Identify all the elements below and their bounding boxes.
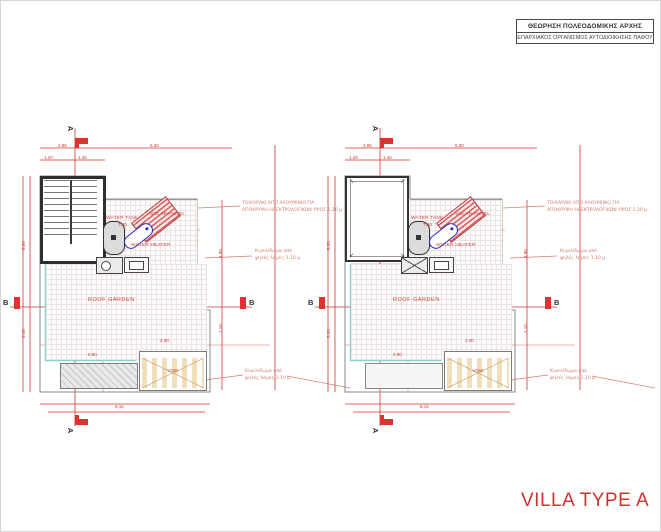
note-line: ΑΠΟΚΡΥΨΗ ΗΛΕΚΤΡΟΛΟΓΙΚΩΝ ΥΨΟΣ 1.20 μ bbox=[547, 208, 647, 213]
drawing-title: VILLA TYPE A bbox=[521, 490, 649, 512]
dimension-label: 8.15 bbox=[420, 404, 429, 409]
dimension-label: 4.90 bbox=[218, 249, 223, 258]
dimension-label: 7.00 bbox=[423, 222, 432, 227]
section-marker-b-right: B bbox=[554, 298, 559, 307]
note-line: Κιγκλίδωμα από bbox=[550, 369, 587, 374]
planter bbox=[365, 363, 443, 389]
stair-treads bbox=[72, 180, 97, 236]
dimension-label: 2.85 bbox=[58, 143, 67, 148]
stair-divider bbox=[70, 180, 72, 244]
section-marker-a-top: A bbox=[371, 126, 380, 131]
section-marker-a-bottom: A bbox=[371, 428, 380, 433]
dimension-label: 3.10 bbox=[21, 329, 26, 338]
stairwell-void: ↖ ↗ ↙ ↘ bbox=[345, 176, 409, 262]
note-line: ψηλές λάμες 1.10 μ bbox=[245, 376, 290, 381]
water-heater-label: WATER HEATER bbox=[436, 243, 476, 248]
approval-line-2: ΕΠΑΡΧΙΑΚΟΣ ΟΡΓΑΝΙΣΜΟΣ ΑΥΤΟΔΙΟΙΚΗΣΗΣ ΠΑΦΟ… bbox=[516, 33, 654, 44]
dimension-label: 2.30 bbox=[465, 338, 474, 343]
water-tank-label: WATER TANK bbox=[106, 216, 138, 221]
stair-treads bbox=[44, 180, 69, 236]
roof-garden-label: ROOF GARDEN bbox=[88, 297, 135, 303]
dimension-label: 1.10 bbox=[218, 324, 223, 333]
dimension-label: 8.15 bbox=[115, 404, 124, 409]
dimension-label: 1.20 bbox=[44, 155, 53, 160]
note-line: ψηλές λάμες 1.10 μ bbox=[255, 256, 300, 261]
sink-unit bbox=[96, 257, 123, 274]
dimension-label: 1.45 bbox=[78, 155, 87, 160]
note-railing: Κιγκλίδωμα από ψηλές λάμες 1.10 μ bbox=[255, 249, 300, 262]
note-railing: Κιγκλίδωμα από ψηλές λάμες 1.10 μ bbox=[560, 249, 605, 262]
dimension-label: 7.00 bbox=[118, 222, 127, 227]
pergola-slats bbox=[447, 358, 509, 388]
corner-arrow-icon: ↙ bbox=[349, 253, 354, 259]
dimension-label: 3.10 bbox=[326, 329, 331, 338]
note-railing-bottom: Κιγκλίδωμα από ψηλές λάμες 1.10 μ bbox=[550, 369, 595, 382]
approval-stamp: ΘΕΩΡΗΣΗ ΠΟΛΕΟΔΟΜΙΚΗΣ ΑΡΧΗΣ ΕΠΑΡΧΙΑΚΟΣ ΟΡ… bbox=[516, 19, 654, 44]
void-label: VOID bbox=[140, 368, 206, 373]
water-tank-label: WATER TANK bbox=[411, 216, 443, 221]
roof-grid-lower bbox=[46, 264, 207, 360]
worktop-unit bbox=[429, 257, 454, 273]
note-line: Κιγκλίδωμα από bbox=[245, 369, 282, 374]
note-line: ψηλές λάμες 1.10 μ bbox=[550, 376, 595, 381]
approval-line-1: ΘΕΩΡΗΣΗ ΠΟΛΕΟΔΟΜΙΚΗΣ ΑΡΧΗΣ bbox=[516, 19, 654, 33]
dimension-label: 8.20 bbox=[326, 241, 331, 250]
note-line: Κιγκλίδωμα από bbox=[255, 249, 292, 254]
dimension-label: 0.90 bbox=[393, 352, 402, 357]
dimension-label: 0.90 bbox=[88, 352, 97, 357]
note-aluminium-screen: ΤΟΙΧΑΡΑΚΙ ΑΠΟ ΑΛΟΥΜΙΝΙΟ ΓΙΑ ΑΠΟΚΡΥΨΗ ΗΛΕ… bbox=[547, 201, 647, 214]
stairwell-void-inner bbox=[350, 181, 404, 257]
solar-panel-label: SOLAR PANEL bbox=[150, 212, 185, 217]
roof-garden-label: ROOF GARDEN bbox=[393, 297, 440, 303]
planter bbox=[60, 363, 138, 389]
solar-panel-label: SOLAR PANEL bbox=[455, 212, 490, 217]
section-marker-a-top: A bbox=[66, 126, 75, 131]
dimension-label: 4.90 bbox=[523, 249, 528, 258]
drawing-sheet: { "approval": { "line1": "ΘΕΩΡΗΣΗ ΠΟΛΕΟΔ… bbox=[0, 0, 661, 532]
note-line: ΑΠΟΚΡΥΨΗ ΗΛΕΚΤΡΟΛΟΓΙΚΩΝ ΥΨΟΣ 1.20 μ bbox=[242, 208, 342, 213]
dimension-label: 1.20 bbox=[349, 155, 358, 160]
section-marker-b-left: B bbox=[308, 298, 313, 307]
dimension-label: 5.30 bbox=[150, 143, 159, 148]
note-line: ΤΟΙΧΑΡΑΚΙ ΑΠΟ ΑΛΟΥΜΙΝΙΟ ΓΙΑ bbox=[547, 201, 619, 206]
dimension-label: 8.20 bbox=[21, 241, 26, 250]
void-label: VOID bbox=[445, 368, 511, 373]
water-heater-label: WATER HEATER bbox=[131, 243, 171, 248]
note-line: ΤΟΙΧΑΡΑΚΙ ΑΠΟ ΑΛΟΥΜΙΝΙΟ ΓΙΑ bbox=[242, 201, 314, 206]
pergola-void: VOID bbox=[444, 351, 512, 391]
note-railing-bottom: Κιγκλίδωμα από ψηλές λάμες 1.10 μ bbox=[245, 369, 290, 382]
roof-grid-lower bbox=[351, 264, 512, 360]
section-marker-b-right: B bbox=[249, 298, 254, 307]
section-marker-b-left: B bbox=[3, 298, 8, 307]
pergola-slats bbox=[142, 358, 204, 388]
section-marker-a-bottom: A bbox=[66, 428, 75, 433]
dimension-label: 2.30 bbox=[160, 338, 169, 343]
dimension-label: 1.10 bbox=[523, 324, 528, 333]
dimension-label: 5.30 bbox=[455, 143, 464, 148]
worktop-unit bbox=[124, 257, 149, 273]
note-line: Κιγκλίδωμα από bbox=[560, 249, 597, 254]
stair-block bbox=[40, 176, 106, 264]
dimension-label: 2.85 bbox=[363, 143, 372, 148]
note-aluminium-screen: ΤΟΙΧΑΡΑΚΙ ΑΠΟ ΑΛΟΥΜΙΝΙΟ ΓΙΑ ΑΠΟΚΡΥΨΗ ΗΛΕ… bbox=[242, 201, 342, 214]
note-line: ψηλές λάμες 1.10 μ bbox=[560, 256, 605, 261]
dimension-label: 1.45 bbox=[383, 155, 392, 160]
corner-arrow-icon: ↖ bbox=[349, 179, 354, 185]
pergola-void: VOID bbox=[139, 351, 207, 391]
sink-unit bbox=[401, 257, 428, 274]
corner-arrow-icon: ↗ bbox=[400, 179, 405, 185]
